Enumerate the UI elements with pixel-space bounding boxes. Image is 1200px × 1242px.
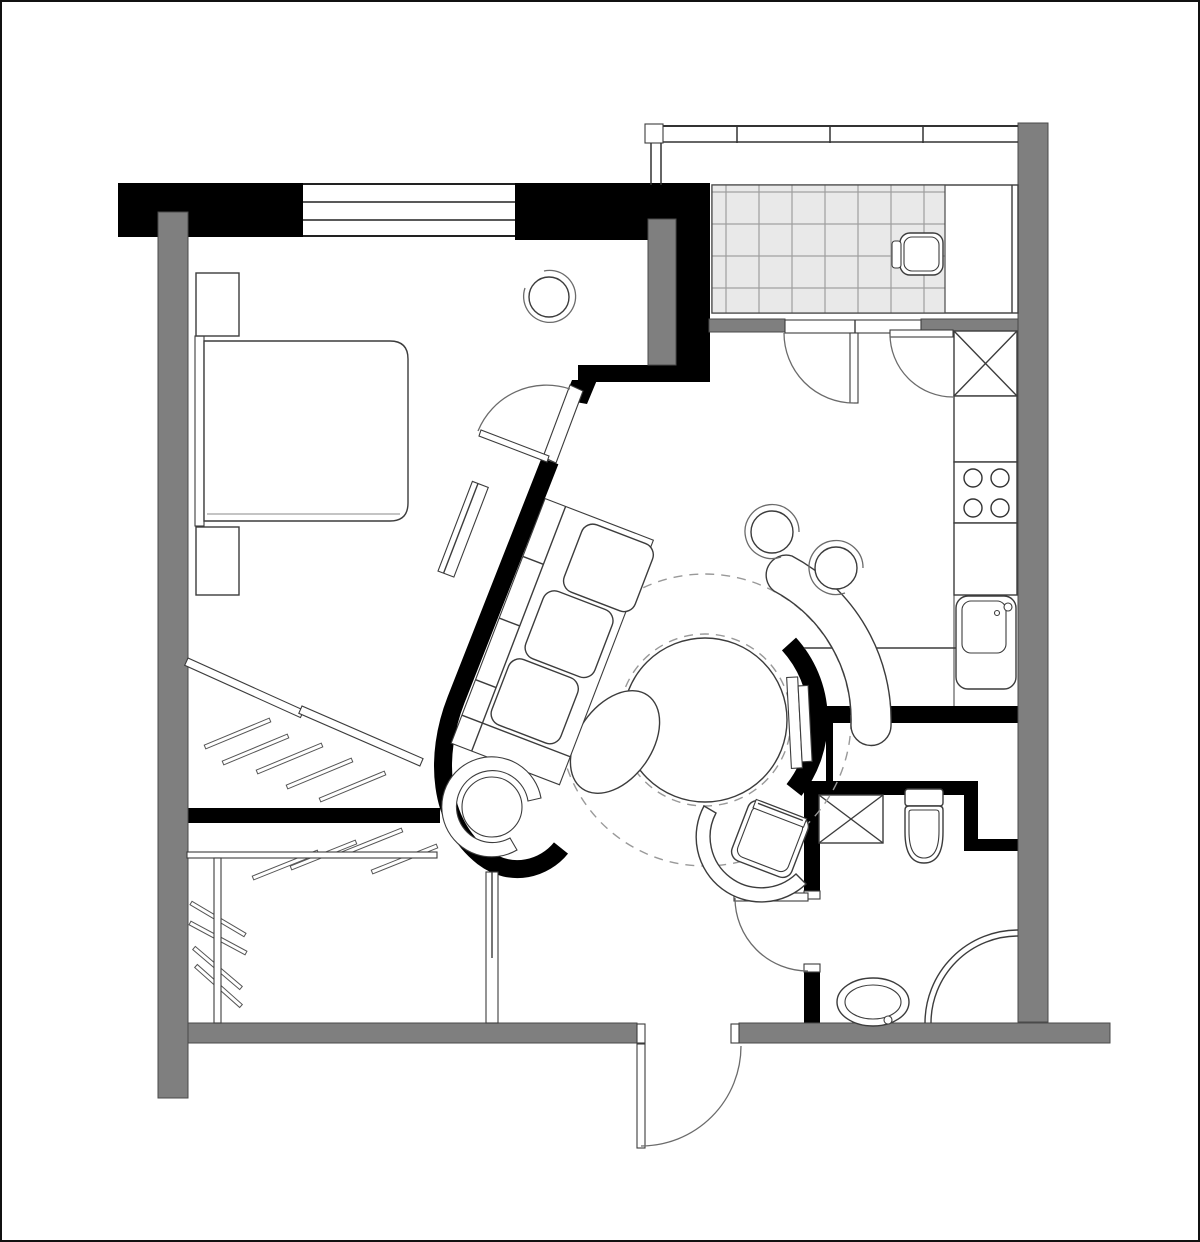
balcony-railing: [645, 124, 1018, 185]
wall-closet: [188, 808, 440, 823]
window-opening: [303, 183, 515, 237]
bedroom-door: [478, 385, 583, 463]
window-stool-seat: [529, 277, 569, 317]
entrance-jamb-left: [637, 1024, 645, 1043]
toilet-bowl-inner: [909, 810, 939, 858]
kitchen-door-leaf: [890, 330, 953, 337]
wall-entry-leg: [676, 240, 710, 382]
pouf-2-seat: [815, 547, 857, 589]
entrance-door-leaf: [637, 1044, 645, 1148]
bedroom-door-opening: [543, 385, 583, 463]
wall-bathroom-notch-bottom: [978, 839, 1018, 851]
sink-faucet: [1004, 603, 1012, 611]
shower-front-outer-arc: [925, 930, 1018, 1023]
balcony-door-leaf: [850, 333, 858, 403]
swivel-chair: [442, 757, 541, 857]
oval-basin: [837, 978, 909, 1026]
hanger-stroke: [204, 718, 271, 749]
wall-bottom-left: [188, 1023, 637, 1043]
armchair-with-tablet: [696, 798, 811, 902]
nightstand-top: [196, 273, 239, 336]
nightstand-bottom: [196, 527, 239, 595]
wall-bedroom-top-left: [118, 183, 303, 237]
floor-plan-drawing: [0, 0, 1200, 1242]
hanger-stroke: [319, 771, 386, 802]
wall-entry-top-band: [515, 183, 710, 240]
clothes-rail-lower: [299, 706, 423, 766]
entrance-door-swing-arc: [641, 1046, 741, 1146]
bathroom-door: [734, 891, 820, 972]
window-stool: [524, 270, 576, 322]
clothes-rail-upper: [185, 658, 304, 718]
pouf-1: [745, 505, 799, 559]
kitchen-counter-mid: [954, 523, 1017, 595]
entrance-door: [637, 1024, 741, 1148]
swivel-chair-seat: [462, 777, 522, 837]
basin-inner: [845, 985, 901, 1019]
sink-basin: [962, 601, 1006, 653]
bathroom: [819, 789, 1018, 1026]
hanger-hatch: [189, 718, 438, 1007]
floor-plan-page: [0, 0, 1200, 1242]
tv-panel: [787, 676, 813, 768]
wall-bathroom-left-lower: [804, 972, 820, 1026]
kitchen-door-swing-arc: [890, 334, 953, 397]
stove: [954, 462, 1017, 523]
entrance-jamb-right: [731, 1024, 739, 1043]
balcony-chair-back: [892, 241, 901, 268]
washer-box: [819, 795, 883, 843]
entry-pilaster: [648, 219, 676, 365]
wall-shelf: [438, 481, 488, 577]
toilet: [905, 789, 943, 863]
pouf-2: [809, 541, 863, 595]
bed-headboard: [195, 336, 204, 526]
wall-bottom-right: [739, 1023, 1110, 1043]
corner-shower: [925, 930, 1018, 1023]
hanger-stroke: [371, 844, 437, 874]
toilet-tank: [905, 789, 943, 806]
kitchen-counter-upper: [954, 396, 1017, 462]
bathroom-door-swing-arc: [735, 898, 808, 971]
sink-drain-dot: [995, 611, 1000, 616]
kitchen-door: [890, 330, 953, 397]
wall-entry-stub: [578, 365, 710, 382]
balcony-sill-left: [709, 319, 785, 332]
basin-overflow: [884, 1016, 892, 1024]
wall-left: [158, 212, 188, 1098]
shower-front-inner-arc: [931, 936, 1018, 1023]
bedroom-window: [303, 183, 515, 237]
hanger-stroke: [286, 758, 353, 789]
closet-partition-vertical-left: [214, 858, 221, 1023]
sink: [956, 596, 1016, 689]
balcony-door-swing-arc: [784, 333, 854, 403]
railing-ticks: [737, 126, 923, 143]
wall-bathroom-jog-vertical: [964, 795, 978, 851]
wall-right: [1018, 123, 1048, 1022]
balcony-chair-seat-inner: [904, 237, 939, 271]
bedroom-door-leaf: [479, 430, 549, 462]
pouf-1-seat: [751, 511, 793, 553]
bed: [204, 341, 408, 521]
balcony-door: [784, 333, 858, 403]
shaft-box-kitchen: [954, 331, 1017, 396]
wall-bathroom-left-upper: [804, 795, 820, 892]
closet-partition-horizontal: [187, 852, 437, 858]
railing-end-post: [645, 124, 663, 143]
wall-bathroom-top: [804, 781, 978, 795]
